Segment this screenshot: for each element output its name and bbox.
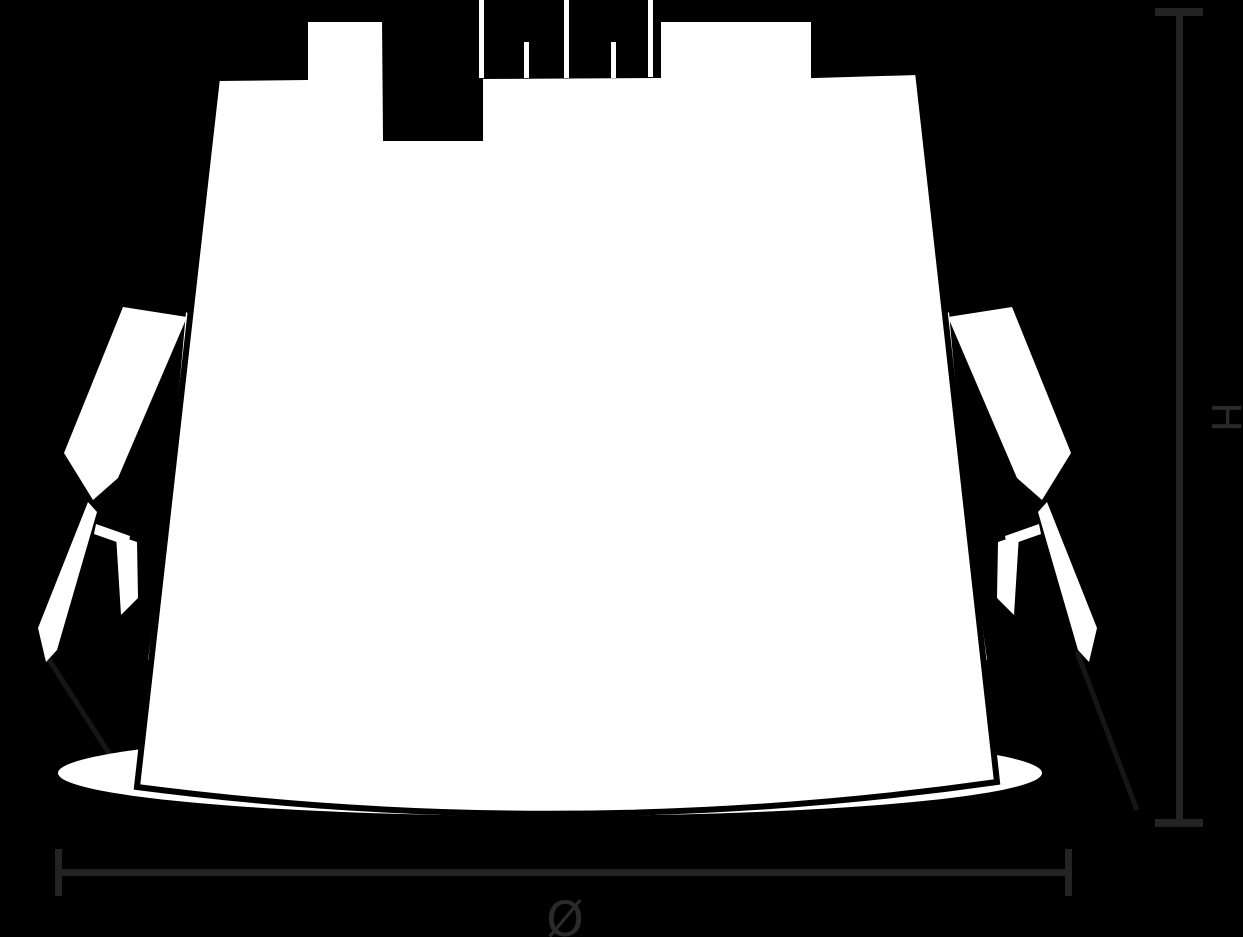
terminal-wire: [611, 42, 616, 78]
height-bottom-tick: [1155, 819, 1203, 827]
diameter-right-tick: [1065, 849, 1072, 896]
diameter-label: Ø: [546, 892, 584, 937]
diameter-dimension-line: [55, 869, 1072, 876]
terminal-wire: [648, 0, 653, 77]
downlight-dimension-drawing: H Ø: [0, 0, 1243, 937]
fixture-body: [137, 19, 997, 814]
height-dimension-line: [1176, 12, 1183, 823]
dimension-drawing-page: H Ø: [0, 0, 1243, 937]
terminal-wire: [564, 0, 569, 78]
terminal-wire: [524, 42, 529, 78]
terminal-wire: [479, 0, 484, 78]
height-label: H: [1202, 402, 1243, 432]
